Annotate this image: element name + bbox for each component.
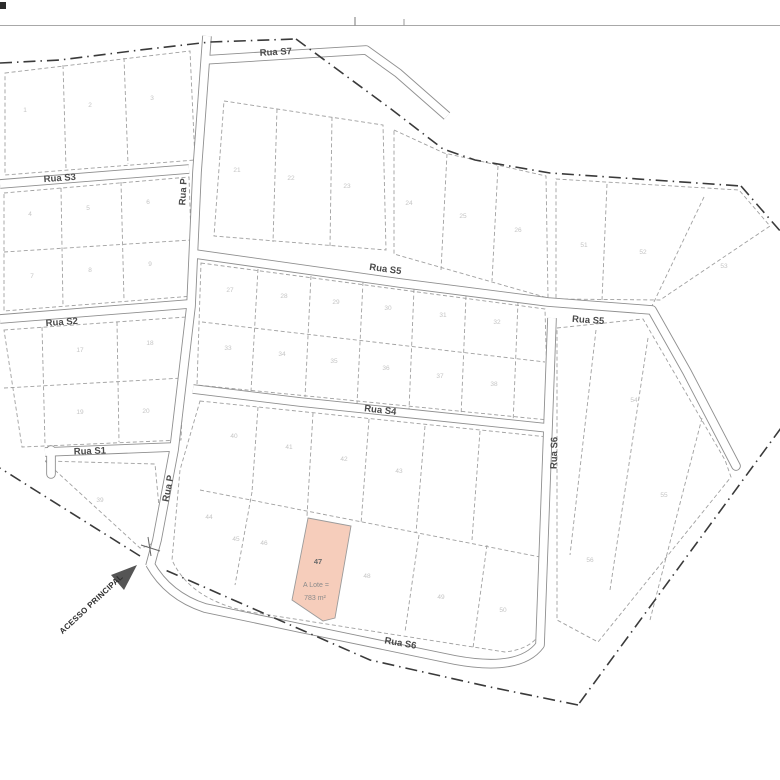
lot-number-9: 9	[148, 261, 152, 268]
lot-number-24: 24	[405, 200, 413, 207]
lot-number-1: 1	[23, 107, 27, 114]
lot-number-25: 25	[459, 213, 467, 220]
lot-number-27: 27	[226, 287, 234, 294]
lot-number-22: 22	[287, 175, 295, 182]
lot-number-55: 55	[660, 492, 668, 499]
lot-number-6: 6	[146, 199, 150, 206]
lot-number-21: 21	[233, 167, 241, 174]
scan-edge-line	[0, 2, 780, 26]
lot-number-49: 49	[437, 594, 445, 601]
lot-number-41: 41	[285, 444, 293, 451]
lot-47-number: 47	[314, 557, 322, 566]
lot-number-39: 39	[96, 497, 104, 504]
scan-corner-mark	[0, 2, 6, 9]
lot-number-30: 30	[384, 305, 392, 312]
lot-number-28: 28	[280, 293, 288, 300]
lot-47-area-prefix: A Lote =	[303, 582, 329, 589]
lot-number-2: 2	[88, 102, 92, 109]
lot-number-51: 51	[580, 242, 588, 249]
lot-number-32: 32	[493, 319, 501, 326]
lot-number-48: 48	[363, 573, 371, 580]
lot-number-17: 17	[76, 347, 84, 354]
lot-number-50: 50	[499, 607, 507, 614]
street-label-rua-s4: Rua S4	[364, 403, 398, 418]
lot-number-46: 46	[260, 540, 268, 547]
lot-number-35: 35	[330, 358, 338, 365]
lot-number-42: 42	[340, 456, 348, 463]
lot-number-53: 53	[720, 263, 728, 270]
lot-number-18: 18	[146, 340, 154, 347]
street-label-rua-s6-vertical: Rua S6	[549, 437, 561, 469]
lot-number-45: 45	[232, 536, 240, 543]
lot-number-54: 54	[630, 397, 638, 404]
site-plan-page: Rua S7 Rua S3 Rua S2 Rua S1 Rua P Rua P …	[0, 0, 780, 780]
road-casings	[0, 36, 736, 664]
lot-number-40: 40	[230, 433, 238, 440]
lot-number-3: 3	[150, 95, 154, 102]
street-label-rua-p-upper: Rua P	[177, 177, 189, 205]
street-label-rua-s3: Rua S3	[43, 172, 76, 185]
lot-number-29: 29	[332, 299, 340, 306]
subdivision-plan-map: Rua S7 Rua S3 Rua S2 Rua S1 Rua P Rua P …	[0, 0, 780, 780]
lot-number-19: 19	[76, 409, 84, 416]
lot-number-4: 4	[28, 211, 32, 218]
lot-number-37: 37	[436, 373, 444, 380]
lot-number-38: 38	[490, 381, 498, 388]
lot-number-5: 5	[86, 205, 90, 212]
lot-number-8: 8	[88, 267, 92, 274]
lot-number-34: 34	[278, 351, 286, 358]
lot-number-33: 33	[224, 345, 232, 352]
road-rua-s5	[195, 254, 736, 466]
lot-number-23: 23	[343, 183, 351, 190]
property-boundary-line	[0, 39, 780, 705]
parcel-lines	[4, 51, 770, 652]
lot-number-43: 43	[395, 468, 403, 475]
street-label-rua-s7: Rua S7	[259, 46, 292, 59]
lot-number-31: 31	[439, 312, 447, 319]
lot-number-7: 7	[30, 273, 34, 280]
street-label-rua-s2: Rua S2	[45, 316, 78, 329]
lot-number-26: 26	[514, 227, 522, 234]
lot-47-area-value: 783 m²	[304, 595, 326, 602]
highlighted-lot-47	[292, 518, 351, 621]
road-surfaces	[0, 36, 736, 664]
street-label-rua-p-lower: Rua P	[161, 474, 177, 503]
lot-number-44: 44	[205, 514, 213, 521]
access-principal-label: ACESSO PRINCIPAL	[58, 572, 125, 635]
lot-number-20: 20	[142, 408, 150, 415]
lot-number-52: 52	[639, 249, 647, 256]
lot-number-36: 36	[382, 365, 390, 372]
street-label-rua-s5-ext: Rua S5	[572, 314, 606, 327]
street-label-rua-s1: Rua S1	[74, 445, 107, 457]
lot-number-56: 56	[586, 557, 594, 564]
